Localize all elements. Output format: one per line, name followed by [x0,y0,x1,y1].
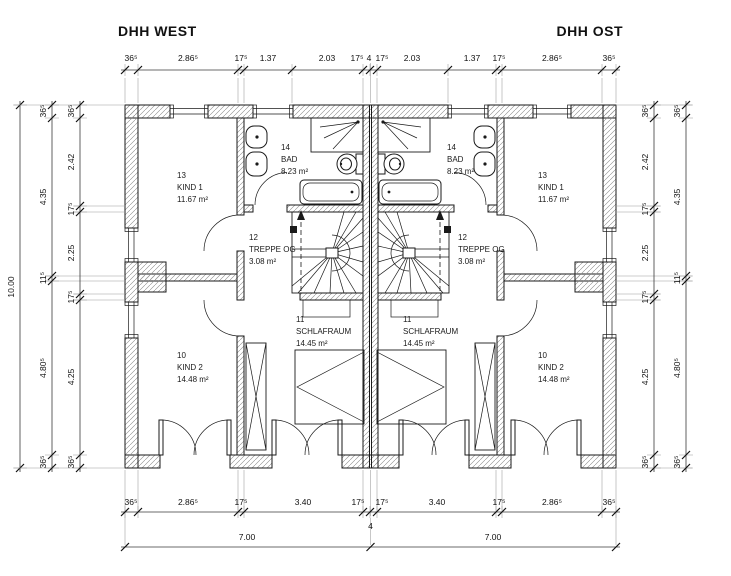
toilet-ost [378,154,404,174]
room-name: KIND 2 [538,363,564,372]
dim-label: 4.25 [66,368,76,385]
bed-ost [377,350,446,424]
washbasin-ost-2 [474,152,495,176]
room-number: 14 [281,143,290,152]
dim-label: 7.00 [485,532,502,542]
room-number: 10 [177,351,186,360]
dim-label: 36⁵ [672,456,682,469]
dimension-chain-left-inner: 36⁵ 2.42 17⁵ 2.25 17⁵ 4.25 36⁵ [66,101,87,472]
room-area: 14.48 m² [538,375,570,384]
room-name: BAD [281,155,298,164]
bathtub-west [300,180,362,204]
room-area: 14.48 m² [177,375,209,384]
window-top-west-bad [253,105,293,118]
dim-label: 36⁵ [66,456,76,469]
room-label-bad-ost: 14 BAD 8.23 m² [447,143,474,176]
dim-label: 2.86⁵ [178,53,198,63]
dim-label: 11⁵ [38,272,48,284]
window-right-kind1 [603,228,616,262]
dim-label: 4.80⁵ [38,358,48,378]
room-name: TREPPE OG [249,245,296,254]
party-wall [363,105,378,468]
room-name: BAD [447,155,464,164]
dim-label: 1.37 [464,53,481,63]
dim-label: 17⁵ [66,291,76,304]
niche-west [303,300,350,317]
dim-label: 11⁵ [672,272,682,284]
door-arc-kind2-ost [501,300,537,336]
room-area: 11.67 m² [538,195,569,204]
dim-label: 4 [367,53,372,63]
room-label-kind1-west: 13 KIND 1 11.67 m² [177,171,208,204]
washbasin-west-1 [246,126,267,148]
floor-plan-drawing: DHH WEST DHH OST [0,0,731,576]
chimney-west [138,262,166,292]
window-top-ost-kind1 [533,105,571,118]
washbasin-west-2 [246,152,267,176]
bed-west [295,350,364,424]
window-top-ost-bad [448,105,488,118]
bathtub-ost [379,180,441,204]
dim-label: 4.80⁵ [672,358,682,378]
dim-label: 2.86⁵ [542,497,562,507]
dim-label: 36⁵ [640,456,650,469]
room-number: 12 [458,233,467,242]
dim-label: 2.86⁵ [178,497,198,507]
title-dhh-ost: DHH OST [557,23,624,39]
dim-label: 36⁵ [125,53,138,63]
windows [125,105,616,338]
dim-label: 2.25 [640,244,650,261]
room-label-kind1-ost: 13 KIND 1 11.67 m² [538,171,569,204]
dim-label: 17⁵ [640,291,650,304]
dim-label: 17⁵ [493,497,506,507]
dim-label: 17⁵ [376,53,389,63]
dim-label: 3.40 [429,497,446,507]
dim-label: 36⁵ [66,105,76,118]
door-arc-bad-west [255,173,287,206]
dim-label: 10.00 [6,276,16,298]
dimension-chain-left-outer: 36⁵ 4.35 11⁵ 4.80⁵ 36⁵ [38,101,59,472]
room-name: SCHLAFRAUM [296,327,351,336]
dim-label: 7.00 [239,532,256,542]
room-label-treppe-west: 12 TREPPE OG 3.08 m² [249,233,296,266]
room-area: 8.23 m² [281,167,308,176]
dim-label: 36⁵ [672,105,682,118]
window-right-kind2 [603,302,616,338]
room-number: 13 [538,171,547,180]
wardrobe-west [246,343,266,450]
dim-label: 36⁵ [603,53,616,63]
dim-label: 36⁵ [603,497,616,507]
room-number: 11 [296,315,305,324]
door-arc-kind1-ost [501,215,537,251]
room-name: SCHLAFRAUM [403,327,458,336]
room-name: KIND 1 [177,183,203,192]
room-number: 13 [177,171,186,180]
room-area: 8.23 m² [447,167,474,176]
stair-ost [378,210,451,293]
exterior-walls [125,105,616,468]
dim-label: 17⁵ [235,497,248,507]
washbasin-ost-1 [474,126,495,148]
dim-label: 36⁵ [125,497,138,507]
room-label-kind2-ost: 10 KIND 2 14.48 m² [538,351,570,384]
french-door-kind2-west [159,420,231,455]
dim-label: 17⁵ [493,53,506,63]
dimension-chain-left-total: 10.00 [6,101,27,472]
room-area: 11.67 m² [177,195,208,204]
wardrobe-ost [475,343,495,450]
door-arc-bad-ost [454,173,486,206]
floor-plan-sheet: DHH WEST DHH OST [0,0,731,576]
room-name: KIND 2 [177,363,203,372]
door-arc-kind2-west [204,300,240,336]
room-number: 10 [538,351,547,360]
dim-label: 3.40 [295,497,312,507]
room-number: 12 [249,233,258,242]
room-label-kind2-west: 10 KIND 2 14.48 m² [177,351,209,384]
chimney-ost [575,262,603,292]
stair-newel-west [290,226,297,233]
room-label-bad-west: 14 BAD 8.23 m² [281,143,308,176]
dim-label: 1.37 [260,53,277,63]
window-left-kind1 [125,228,138,262]
dimension-chain-right-outer: 36⁵ 4.35 11⁵ 4.80⁵ 36⁵ [672,101,693,472]
niche-ost [391,300,438,317]
dim-label: 2.25 [66,244,76,261]
stair-west [290,210,363,293]
dim-label: 2.03 [319,53,336,63]
dim-label: 2.03 [404,53,421,63]
interior-walls [138,118,603,455]
room-number: 14 [447,143,456,152]
room-area: 3.08 m² [458,257,485,266]
window-left-kind2 [125,302,138,338]
dim-label: 17⁵ [235,53,248,63]
shower-west [311,118,363,152]
stair-newel-ost [444,226,451,233]
dim-label: 4.35 [672,188,682,205]
window-top-west-kind1 [170,105,208,118]
room-area: 14.45 m² [403,339,435,348]
dim-label: 17⁵ [352,497,365,507]
dim-label: 17⁵ [351,53,364,63]
dim-label: 4 [368,521,373,531]
room-name: KIND 1 [538,183,564,192]
extension-lines [14,63,692,545]
french-door-kind2-ost [511,420,581,455]
dim-label: 36⁵ [38,105,48,118]
dim-label: 2.42 [640,153,650,170]
toilet-west [337,154,363,174]
dim-label: 4.25 [640,368,650,385]
french-door-schlafraum-west [272,420,342,455]
room-label-schlafraum-west: 11 SCHLAFRAUM 14.45 m² [296,315,351,348]
dim-label: 17⁵ [66,203,76,216]
french-door-schlafraum-ost [399,420,469,455]
door-arc-kind1-west [204,215,240,251]
dim-label: 36⁵ [640,105,650,118]
room-number: 11 [403,315,412,324]
dim-label: 17⁵ [640,203,650,216]
dim-label: 4.35 [38,188,48,205]
room-area: 3.08 m² [249,257,276,266]
dimension-chain-right-inner: 36⁵ 2.42 17⁵ 2.25 17⁵ 4.25 36⁵ [640,101,661,472]
room-label-schlafraum-ost: 11 SCHLAFRAUM 14.45 m² [403,315,458,348]
dim-label: 2.86⁵ [542,53,562,63]
shower-ost [378,118,430,152]
title-dhh-west: DHH WEST [118,23,197,39]
dim-label: 2.42 [66,153,76,170]
dim-label: 17⁵ [376,497,389,507]
room-area: 14.45 m² [296,339,328,348]
room-name: TREPPE OG [458,245,505,254]
dim-label: 36⁵ [38,456,48,469]
